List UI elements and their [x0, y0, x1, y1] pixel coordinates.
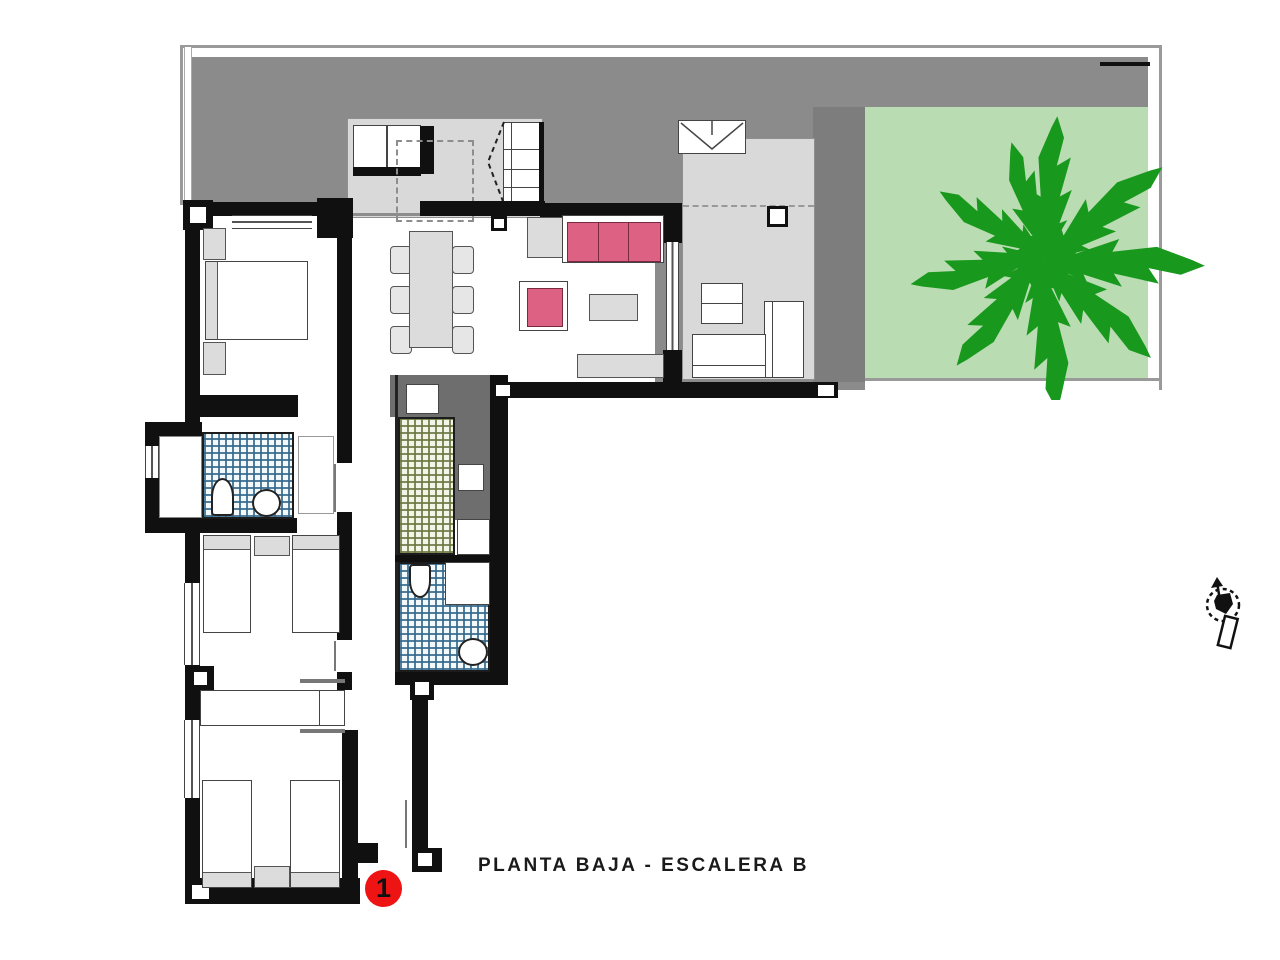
unit-marker[interactable]: 1 — [365, 870, 402, 907]
column-corridor — [415, 682, 429, 695]
dining-chair-5 — [452, 286, 474, 314]
door-leaf-master — [334, 464, 336, 512]
nightstand-bedroom3 — [254, 866, 290, 888]
shower-alcove — [159, 436, 202, 518]
window-living-east — [666, 242, 679, 352]
kitchen-appliance — [457, 519, 490, 555]
north-compass-icon — [1196, 575, 1252, 659]
dining-chair-4 — [452, 246, 474, 274]
column-pier — [194, 672, 207, 685]
column-top-left — [190, 207, 206, 223]
window-alcove — [145, 446, 159, 478]
wall-stub-bedroom3 — [342, 843, 378, 863]
wall-left-c — [185, 798, 200, 882]
column-entry — [491, 216, 507, 231]
twin-bed-c — [202, 780, 252, 888]
toilet-bath2 — [409, 564, 431, 598]
terrace-lamp — [767, 206, 788, 227]
sideboard — [577, 354, 664, 378]
roof-outline-top — [180, 45, 1162, 48]
column-corridor-end — [418, 853, 432, 866]
corner-top-mid — [317, 198, 353, 238]
wall-living-bottom — [493, 382, 838, 398]
nightstand-bedroom2 — [254, 536, 290, 556]
wardrobe — [200, 690, 345, 726]
roof-edge-mark — [1100, 62, 1150, 66]
wall-corridor-a — [337, 238, 352, 463]
wall-bath1-bottom — [190, 518, 297, 533]
terrace-bench-horizontal — [692, 334, 766, 378]
shower-bath2 — [445, 562, 490, 605]
wall-left-master — [185, 228, 200, 422]
wall-below-stairs — [420, 201, 545, 216]
roof-left-border — [184, 47, 192, 203]
kitchen-sink — [458, 464, 484, 491]
kitchen-floor — [398, 417, 455, 555]
dining-chair-6 — [452, 326, 474, 354]
entry-threshold — [353, 213, 420, 216]
vanity-bath1 — [298, 436, 334, 514]
twin-bed-a — [203, 535, 251, 633]
window-bedroom2 — [184, 583, 200, 665]
terrace-dashed-line — [683, 205, 814, 207]
wall-kitchen-bath — [395, 555, 490, 562]
column-living-se — [818, 385, 834, 396]
floorplan-canvas: 1 PLANTA BAJA - ESCALERA B — [0, 0, 1280, 960]
door-leaf-bedroom2 — [334, 641, 336, 671]
garden-tree-icon — [865, 110, 1205, 400]
alcove-left-wall-a — [145, 436, 159, 446]
wardrobe-rail-top — [300, 679, 345, 683]
sink-bath2 — [458, 638, 488, 666]
coffee-table — [589, 294, 638, 321]
nightstand-master-2 — [203, 342, 226, 375]
wardrobe-rail-bottom — [300, 729, 345, 733]
double-bed — [205, 261, 308, 340]
roof-outline-left — [180, 45, 183, 205]
stairs — [503, 122, 541, 204]
side-table — [527, 217, 563, 258]
door-leaf-corridor — [405, 800, 407, 848]
plan-caption: PLANTA BAJA - ESCALERA B — [478, 855, 809, 877]
wall-left-a — [185, 533, 200, 583]
kitchen-fridge — [406, 384, 439, 414]
column-living-sw — [496, 385, 510, 396]
toilet-bath1 — [211, 478, 234, 516]
wall-bath1-top — [188, 395, 298, 417]
window-bedroom3 — [184, 720, 200, 798]
twin-bed-d — [290, 780, 340, 888]
sink-bath1 — [252, 489, 281, 517]
entry-closet-divider — [386, 126, 388, 168]
dining-table — [409, 231, 453, 348]
nightstand-master-1 — [203, 228, 226, 260]
stair-direction-arrow — [484, 120, 506, 206]
kitchen-counter-top — [390, 375, 490, 417]
side-yard-strip — [813, 107, 865, 382]
wall-corridor-south — [412, 700, 428, 850]
corner-living-ne — [663, 213, 682, 243]
twin-bed-b — [292, 535, 340, 633]
alcove-top-wall — [145, 422, 202, 436]
wall-kitchen-right — [490, 375, 508, 685]
window-master-top — [232, 215, 312, 229]
stairwell-wall-right — [539, 122, 544, 204]
terrace-cabinet — [701, 283, 743, 324]
unit-marker-label: 1 — [376, 873, 391, 904]
terrace-bench-vertical — [764, 301, 804, 378]
terrace-awning — [678, 120, 746, 154]
armchair — [519, 281, 568, 331]
alcove-left-wall-b — [145, 478, 159, 518]
sofa — [562, 215, 664, 263]
wall-living-se-stub — [663, 350, 682, 384]
wall-top-master — [210, 202, 322, 216]
